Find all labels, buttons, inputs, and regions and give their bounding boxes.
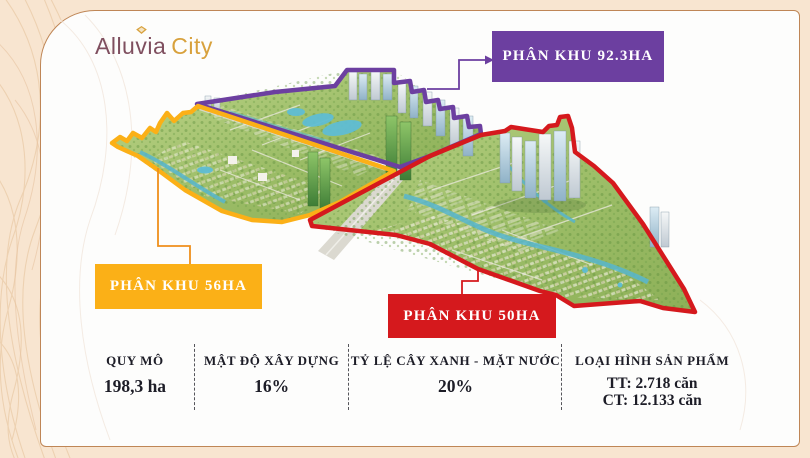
stat-density-value: 16% [254,376,289,397]
stat-density: MẬT ĐỘ XÂY DỰNG 16% [194,344,349,410]
slide: { "page": { "background_color": "#f8e5d0… [0,0,810,458]
zone-label-50ha: PHÂN KHU 50HA [388,294,556,338]
stat-density-label: MẬT ĐỘ XÂY DỰNG [204,353,339,369]
brand-logo: AlluviaCity [95,33,213,60]
zone-label-56ha-text: PHÂN KHU 56HA [110,278,247,295]
zone-label-92ha-text: PHÂN KHU 92.3HA [503,48,654,65]
stat-scale-label: QUY MÔ [106,353,164,369]
stat-products: LOẠI HÌNH SẢN PHẨM TT: 2.718 căn CT: 12.… [561,344,797,410]
stat-scale-value: 198,3 ha [104,376,166,397]
leader-line-92ha [427,60,486,89]
stat-products-line-tt: TT: 2.718 căn [603,375,702,392]
stat-greenery-value: 20% [438,376,473,397]
zone-label-92ha: PHÂN KHU 92.3HA [492,31,664,82]
stat-greenery: TỶ LỆ CÂY XANH - MẶT NƯỚC 20% [348,344,561,410]
brand-suffix: City [171,33,213,59]
stat-products-line-ct: CT: 12.133 căn [603,392,702,409]
stat-greenery-label: TỶ LỆ CÂY XANH - MẶT NƯỚC [351,353,561,369]
stat-scale: QUY MÔ 198,3 ha [40,344,194,410]
logo-diamond-icon [136,26,147,34]
stat-products-values: TT: 2.718 căn CT: 12.133 căn [603,375,702,409]
stat-products-label: LOẠI HÌNH SẢN PHẨM [575,353,729,369]
zone-label-56ha: PHÂN KHU 56HA [95,264,262,309]
stats-bar: QUY MÔ 198,3 ha MẬT ĐỘ XÂY DỰNG 16% TỶ L… [40,344,798,410]
zone-label-50ha-text: PHÂN KHU 50HA [403,308,540,325]
brand-name: Alluvia [95,33,166,59]
